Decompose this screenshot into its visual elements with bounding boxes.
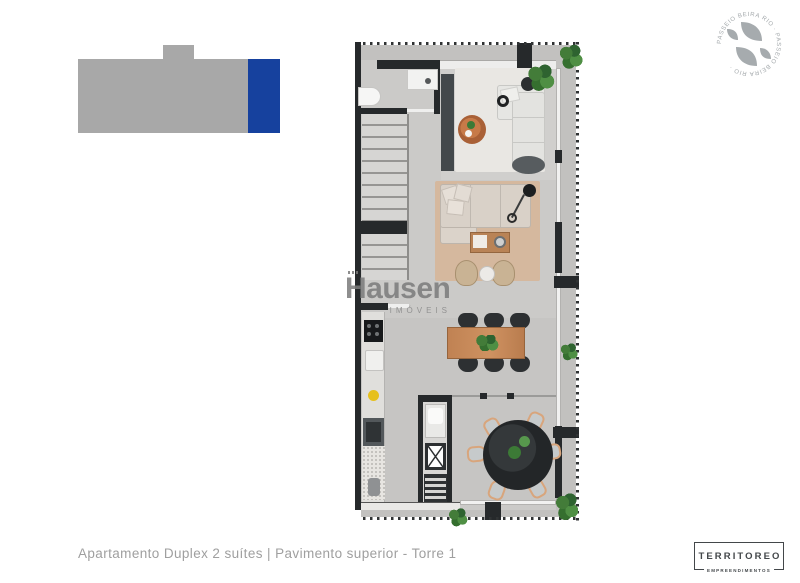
arc-lamp-shade [523,184,536,197]
plant-right-middle [560,343,578,361]
passeio-beira-rio-badge: PASSEIO BEIRA RIO · PASSEIO BEIRA RIO · [710,5,788,83]
building-locator-key [78,45,280,133]
leaf-s-logo-icon [727,22,771,66]
bathroom-door-gap [407,109,434,112]
plant-bottom-right [556,492,578,522]
dining-centerpiece [474,335,500,351]
locator-bar-shape [78,59,248,133]
toilet [358,87,381,106]
table-plant-pot [508,446,521,459]
watermark-brand: Hausen [345,274,451,304]
glass-divider-line [452,395,556,397]
locator-tab-shape [163,45,194,60]
ottoman [512,156,545,174]
oval-coffee-table [458,115,486,144]
cooktop-burner [375,324,379,328]
badge-ring-text: PASSEIO BEIRA RIO · PASSEIO BEIRA RIO · [717,12,781,76]
plant-by-sofa [527,64,555,92]
table-decor-dish [465,130,472,137]
oven-door [366,422,381,442]
projection-dotted-line-right [576,42,579,521]
hausen-dots-icon [348,271,359,274]
x-icon [428,446,443,467]
divider-mullion [480,393,487,399]
stair-landing-wall [355,221,407,234]
bathroom-faucet [425,78,431,84]
badge-seal-icon: PASSEIO BEIRA RIO · PASSEIO BEIRA RIO · [710,5,788,83]
vent-grill [424,474,447,504]
watermark-tagline: IMÓVEIS [345,307,451,315]
counter-appliance [368,478,380,496]
projection-dotted-line-top [363,42,579,45]
glass-wall-bottom [460,500,556,505]
coffee-table-tray [473,235,487,248]
ceiling-lamp-icon [497,95,509,107]
locator-highlight-unit [248,59,280,133]
cooktop-burner [367,324,371,328]
hausen-watermark: Hausen IMÓVEIS [345,274,451,315]
duct-x-symbol [425,443,446,470]
facade-mullion [555,150,562,163]
bathroom-sink-counter [407,69,438,90]
plant-top-right [559,44,583,70]
plant-bottom-center [448,508,468,527]
plan-caption: Apartamento Duplex 2 suítes | Pavimento … [78,546,456,561]
yellow-bowl [368,390,379,401]
cooktop-burner [375,332,379,336]
stair-stringer-line [407,114,409,280]
table-plant [467,121,475,129]
table-plant-pot [519,436,530,447]
shaft-wall-right [447,395,452,510]
divider-mullion [507,393,514,399]
developer-subtitle: EMPREENDIMENTOS [704,568,774,573]
projection-dotted-line-bottom [363,517,579,520]
arc-lamp-base [507,213,517,223]
armchair-right [492,260,515,286]
coffee-table-dish [494,236,506,248]
developer-name: TERRITOREO [696,551,781,562]
armchair-left [455,260,478,286]
sofa-pillow [446,199,464,216]
bathroom-wall-top [377,60,440,69]
shaft-appliance-door [428,408,443,424]
cooktop [364,320,383,342]
staircase-upper-flight [362,114,407,221]
svg-text:PASSEIO BEIRA RIO · PASSEIO BE: PASSEIO BEIRA RIO · PASSEIO BEIRA RIO · [717,12,781,76]
side-table [479,266,495,282]
bottom-wall [361,502,460,510]
tv-panel [441,74,454,171]
kitchen-sink [365,350,384,371]
cooktop-burner [367,332,371,336]
shaft-wall-left [418,395,423,510]
territoreo-logo: TERRITOREO EMPREENDIMENTOS [694,542,784,570]
facade-mullion [555,222,562,273]
